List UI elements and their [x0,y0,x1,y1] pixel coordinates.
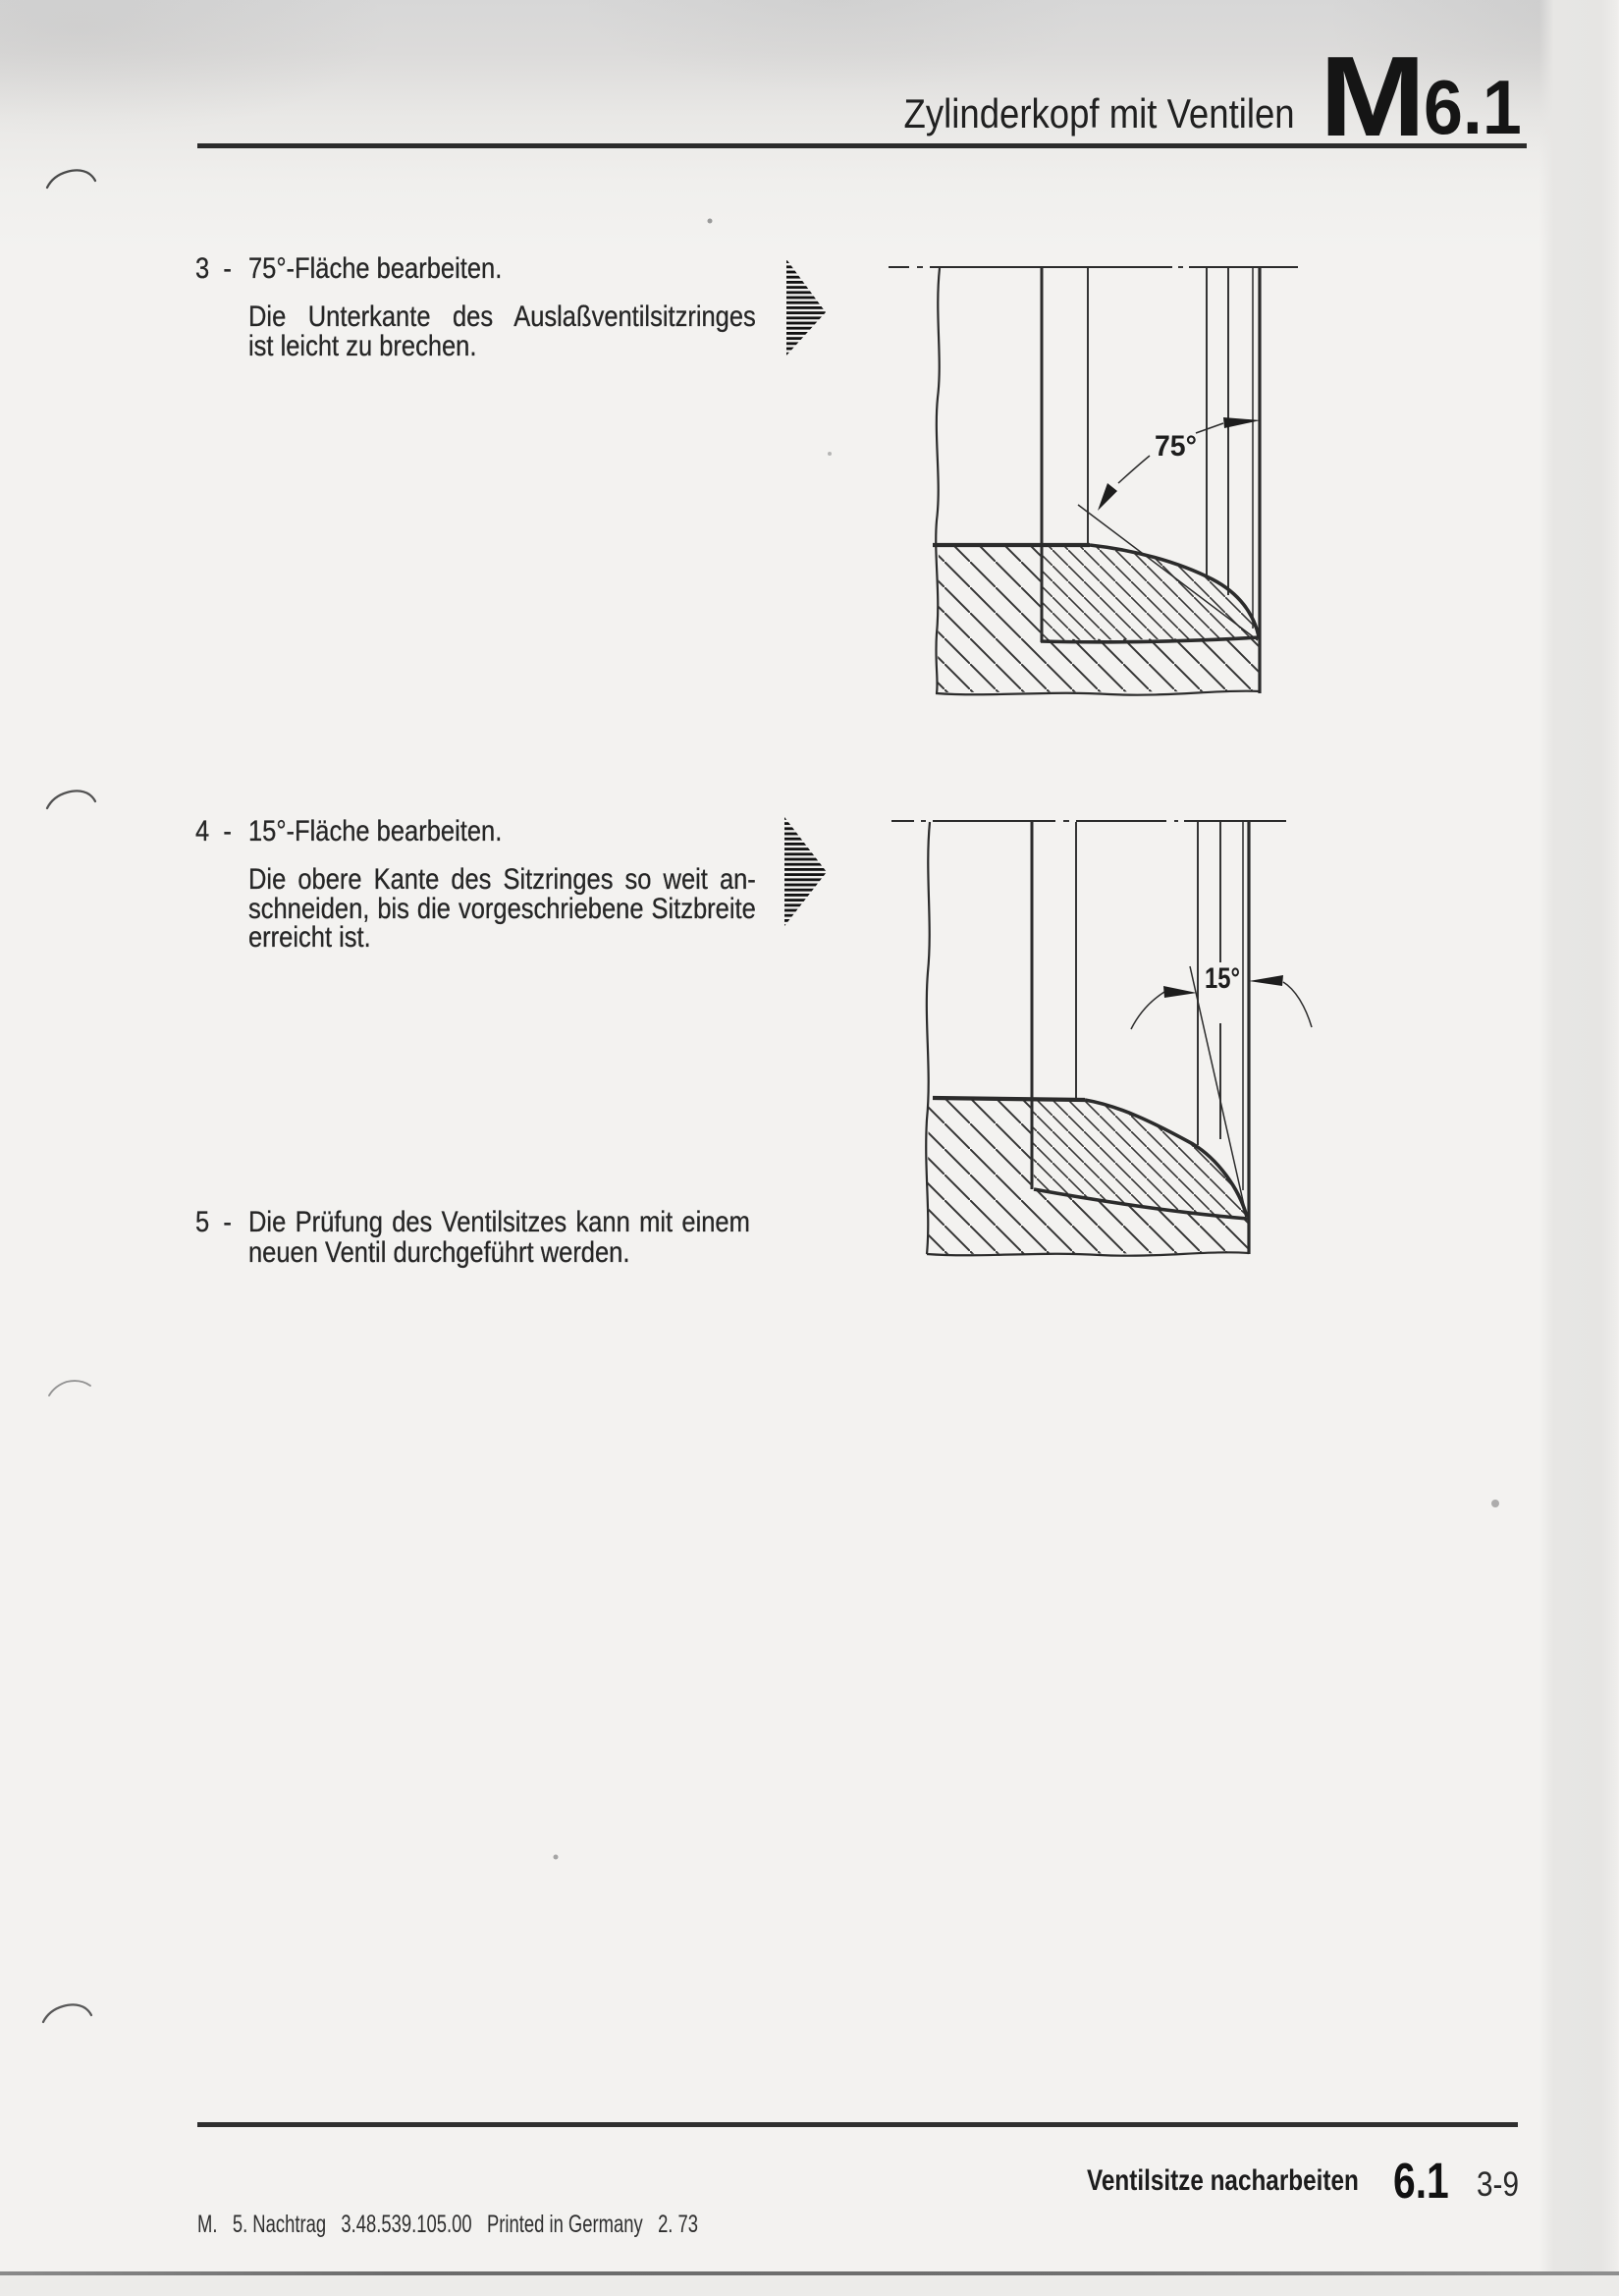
svg-text:75°: 75° [1155,430,1197,463]
svg-text:15°: 15° [1205,962,1240,995]
